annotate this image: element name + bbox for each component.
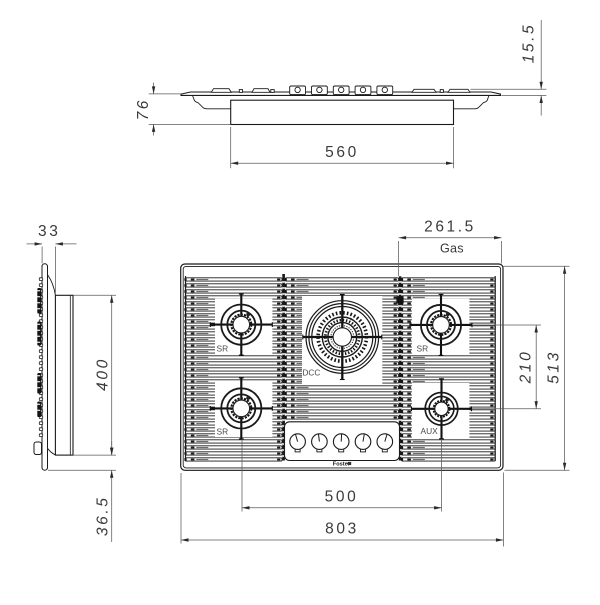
svg-text:513: 513 [546,350,563,384]
svg-text:Gas: Gas [440,241,464,255]
svg-text:SR: SR [217,344,229,354]
svg-text:560: 560 [325,144,359,161]
svg-text:SR: SR [217,427,229,437]
svg-text:36.5: 36.5 [95,496,112,537]
svg-text:500: 500 [325,488,359,505]
svg-text:DCC: DCC [303,369,321,378]
svg-text:SR: SR [417,344,429,354]
svg-text:33: 33 [38,223,60,240]
svg-text:AUX: AUX [421,426,439,436]
svg-text:400: 400 [95,357,112,391]
svg-text:76: 76 [135,98,152,120]
svg-text:15.5: 15.5 [521,23,538,64]
svg-text:210: 210 [518,350,535,385]
svg-text:803: 803 [325,521,359,538]
svg-text:261.5: 261.5 [424,219,476,236]
